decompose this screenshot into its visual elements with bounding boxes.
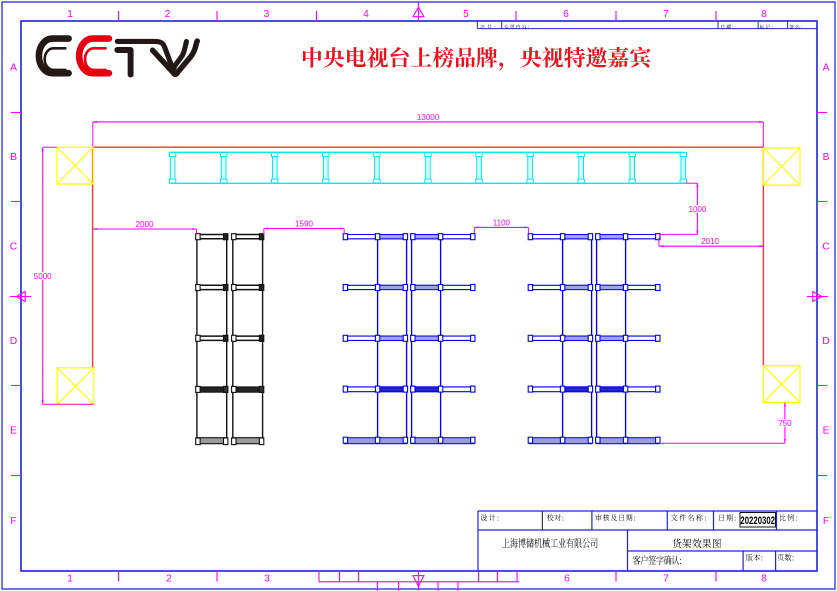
svg-text:8: 8: [761, 9, 767, 20]
svg-text:F: F: [823, 516, 829, 527]
svg-text:750: 750: [778, 419, 792, 428]
svg-text:1100: 1100: [493, 218, 511, 227]
svg-text:A: A: [823, 63, 830, 74]
svg-text:F: F: [10, 516, 16, 527]
svg-text:A: A: [10, 63, 17, 74]
svg-text:1000: 1000: [689, 205, 707, 214]
svg-text:5: 5: [463, 9, 469, 20]
svg-text:1: 1: [67, 574, 73, 585]
svg-text:B: B: [823, 152, 830, 163]
svg-text:20220302: 20220302: [740, 514, 775, 527]
svg-text:2010: 2010: [701, 237, 719, 246]
svg-text:7: 7: [663, 574, 669, 585]
svg-text:2000: 2000: [136, 220, 154, 229]
svg-text:C: C: [10, 242, 18, 253]
svg-text:6: 6: [563, 9, 569, 20]
svg-text:4: 4: [363, 9, 369, 20]
svg-text:6: 6: [564, 574, 570, 585]
svg-text:B: B: [10, 152, 17, 163]
svg-text:8: 8: [761, 574, 767, 585]
svg-text:D: D: [10, 336, 17, 347]
svg-text:D: D: [822, 336, 829, 347]
svg-text:E: E: [10, 426, 17, 437]
svg-text:3: 3: [264, 574, 270, 585]
svg-text:1590: 1590: [295, 220, 313, 229]
svg-text:E: E: [823, 426, 830, 437]
svg-text:2: 2: [165, 9, 171, 20]
svg-text:5000: 5000: [34, 272, 52, 281]
svg-text:13000: 13000: [417, 113, 440, 122]
svg-text:1: 1: [67, 9, 73, 20]
svg-text:C: C: [822, 242, 830, 253]
svg-text:7: 7: [663, 9, 669, 20]
svg-text:2: 2: [166, 574, 172, 585]
svg-text:3: 3: [264, 9, 270, 20]
